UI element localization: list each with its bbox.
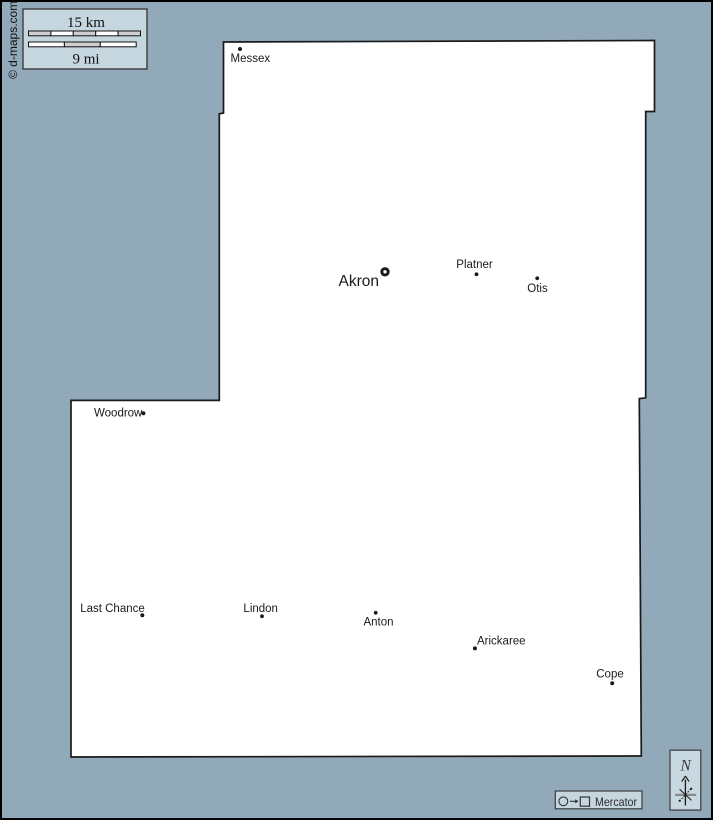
svg-text:N: N	[680, 758, 693, 775]
svg-text:Cope: Cope	[596, 669, 624, 681]
svg-text:Messex: Messex	[231, 53, 271, 65]
svg-text:Arickaree: Arickaree	[477, 636, 526, 648]
svg-text:Anton: Anton	[363, 616, 393, 628]
svg-text:Mercator: Mercator	[595, 795, 637, 809]
svg-text:Last Chance: Last Chance	[80, 603, 145, 615]
svg-text:© d-maps.com: © d-maps.com	[6, 1, 20, 79]
svg-text:Lindon: Lindon	[243, 603, 278, 615]
svg-text:9 mi: 9 mi	[72, 52, 99, 68]
svg-text:Platner: Platner	[456, 259, 493, 271]
svg-text:15 km: 15 km	[67, 15, 105, 31]
svg-text:Akron: Akron	[339, 273, 380, 290]
svg-text:Otis: Otis	[527, 283, 548, 295]
svg-text:Woodrow: Woodrow	[94, 407, 143, 419]
